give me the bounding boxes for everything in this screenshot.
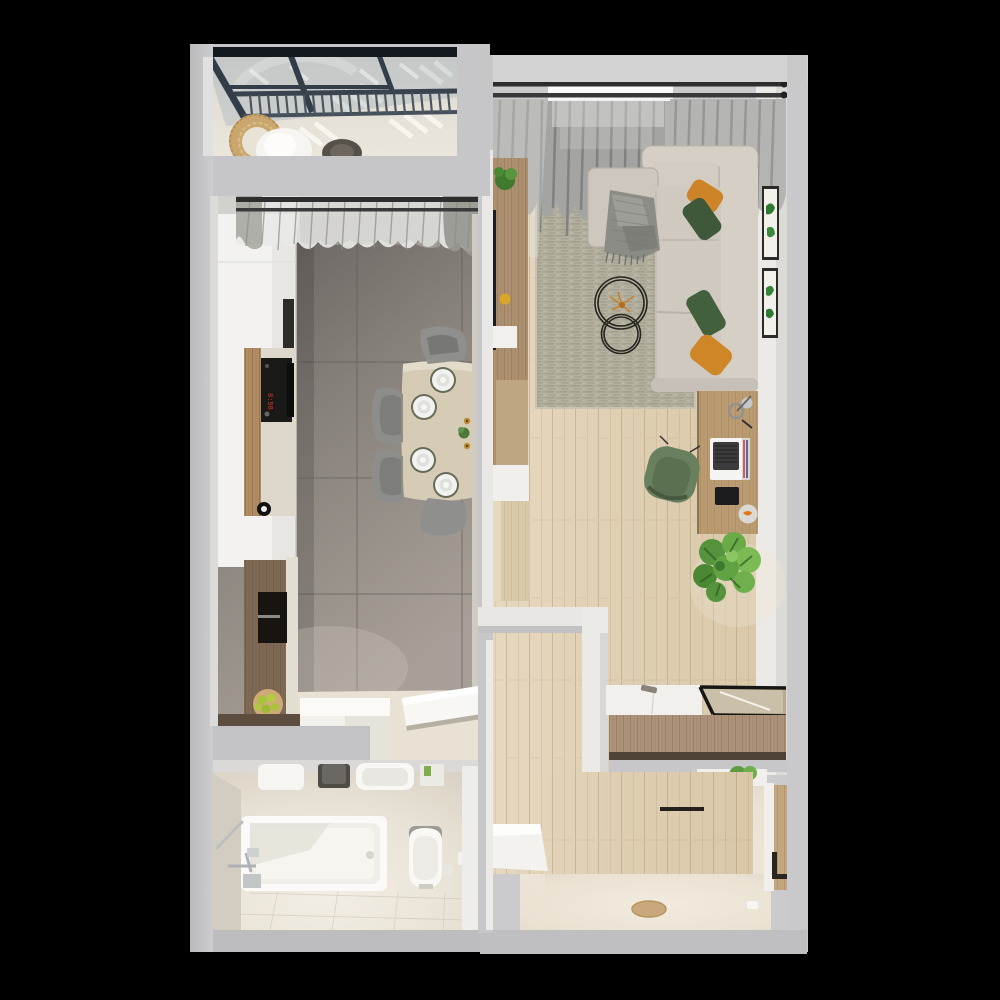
svg-text:8:58: 8:58 bbox=[265, 393, 273, 410]
